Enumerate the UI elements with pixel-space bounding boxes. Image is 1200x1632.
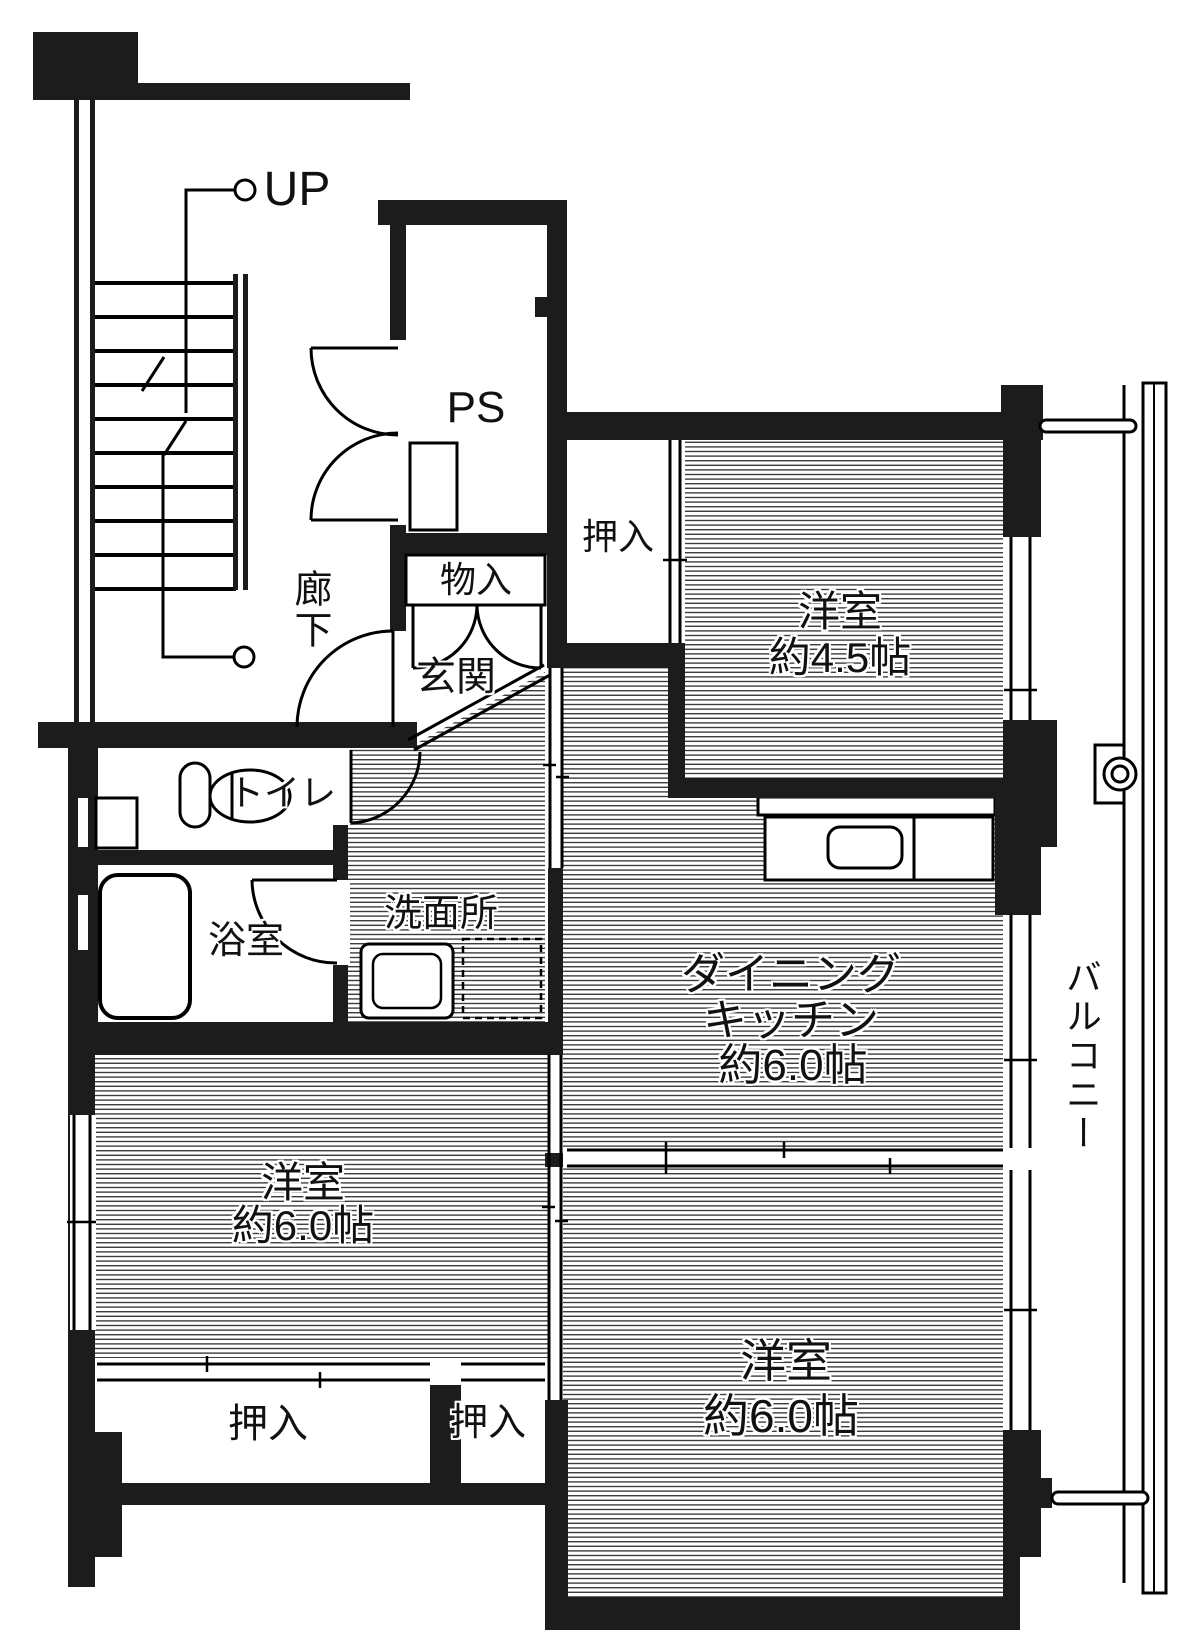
kitchen-backsplash <box>758 797 995 815</box>
ps-door-swing-upper <box>311 348 398 435</box>
dining-kitchen-size: 約6.0帖 <box>718 1043 867 1089</box>
bathtub-icon <box>100 875 190 1018</box>
storage-label: 物入 <box>440 561 512 599</box>
kitchen-unit <box>758 797 995 880</box>
dining-kitchen-label-1: ダイニング <box>681 952 901 998</box>
ps-duct-box <box>410 443 457 530</box>
balcony-label: バルコニー <box>1062 959 1100 1154</box>
bath-window <box>78 895 88 950</box>
wall-top-bar <box>138 83 410 100</box>
balcony-partition-top <box>1040 420 1136 432</box>
closet-top-label: 押入 <box>582 518 654 556</box>
bathroom-label: 浴室 <box>208 922 284 962</box>
stair-end-circle <box>234 647 254 667</box>
western-room-right-size: 約6.0帖 <box>703 1392 859 1440</box>
fusuma-closet-top <box>663 440 687 643</box>
toilet-tank <box>180 763 210 827</box>
balcony-structure <box>1040 383 1166 1593</box>
dining-kitchen-label-2: キッチン <box>703 998 879 1044</box>
balcony-partition-bottom <box>1052 1492 1148 1504</box>
kitchen-sink-icon <box>828 827 902 868</box>
window-room-left <box>67 1115 96 1330</box>
balcony-partition-bracket <box>1035 1478 1052 1508</box>
entrance-label: 玄関 <box>416 656 496 698</box>
western-room-left-size: 約6.0帖 <box>232 1204 374 1248</box>
floorplan-drawing <box>0 0 1200 1632</box>
closet-track-center <box>461 1364 545 1380</box>
toilet-label: トイレ <box>228 774 336 812</box>
western-room-left-label: 洋室 <box>261 1161 345 1205</box>
corridor-label: 廊下 <box>288 569 328 651</box>
toilet-window-box <box>96 798 137 848</box>
closet-bottom-center-label: 押入 <box>450 1404 526 1444</box>
stair-direction-line <box>142 190 234 657</box>
closet-track-left <box>97 1356 430 1388</box>
western-room-small-label: 洋室 <box>798 590 882 634</box>
washroom-label: 洗面所 <box>384 895 498 935</box>
floorplan-page: UP 廊下 PS 物入 玄関 押入 トイレ 浴室 洗面所 洋室 約4.5帖 ダイ… <box>0 0 1200 1632</box>
window-room-right <box>1004 1170 1039 1430</box>
stairs <box>95 180 255 667</box>
stair-treads <box>95 283 236 589</box>
wall-top-left-block <box>33 32 138 100</box>
closet-bottom-left-label: 押入 <box>228 1403 308 1445</box>
stair-start-circle <box>235 180 255 200</box>
western-room-small-size: 約4.5帖 <box>769 636 911 680</box>
western-room-right-label: 洋室 <box>740 1337 832 1385</box>
window-room45 <box>1004 537 1039 720</box>
pipe-space-label: PS <box>447 385 506 431</box>
ps-door-swing-lower <box>311 433 398 520</box>
window-dk <box>1004 915 1039 1148</box>
up-label: UP <box>264 165 331 215</box>
